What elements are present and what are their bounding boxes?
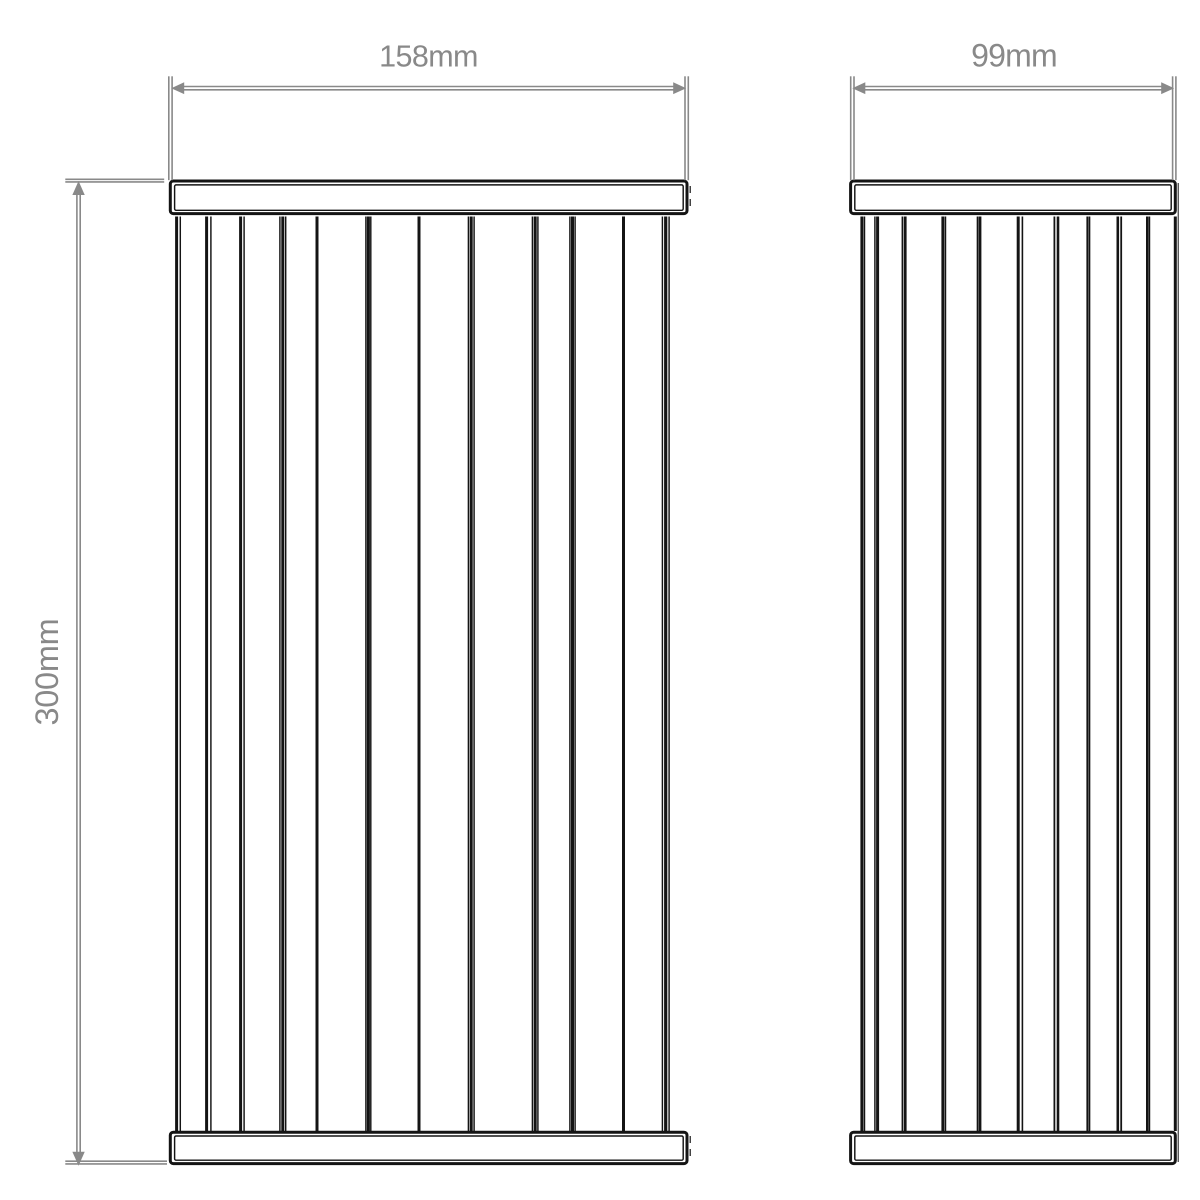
svg-text:300mm: 300mm xyxy=(29,619,65,726)
svg-text:158mm: 158mm xyxy=(379,39,478,73)
svg-text:99mm: 99mm xyxy=(971,37,1057,73)
